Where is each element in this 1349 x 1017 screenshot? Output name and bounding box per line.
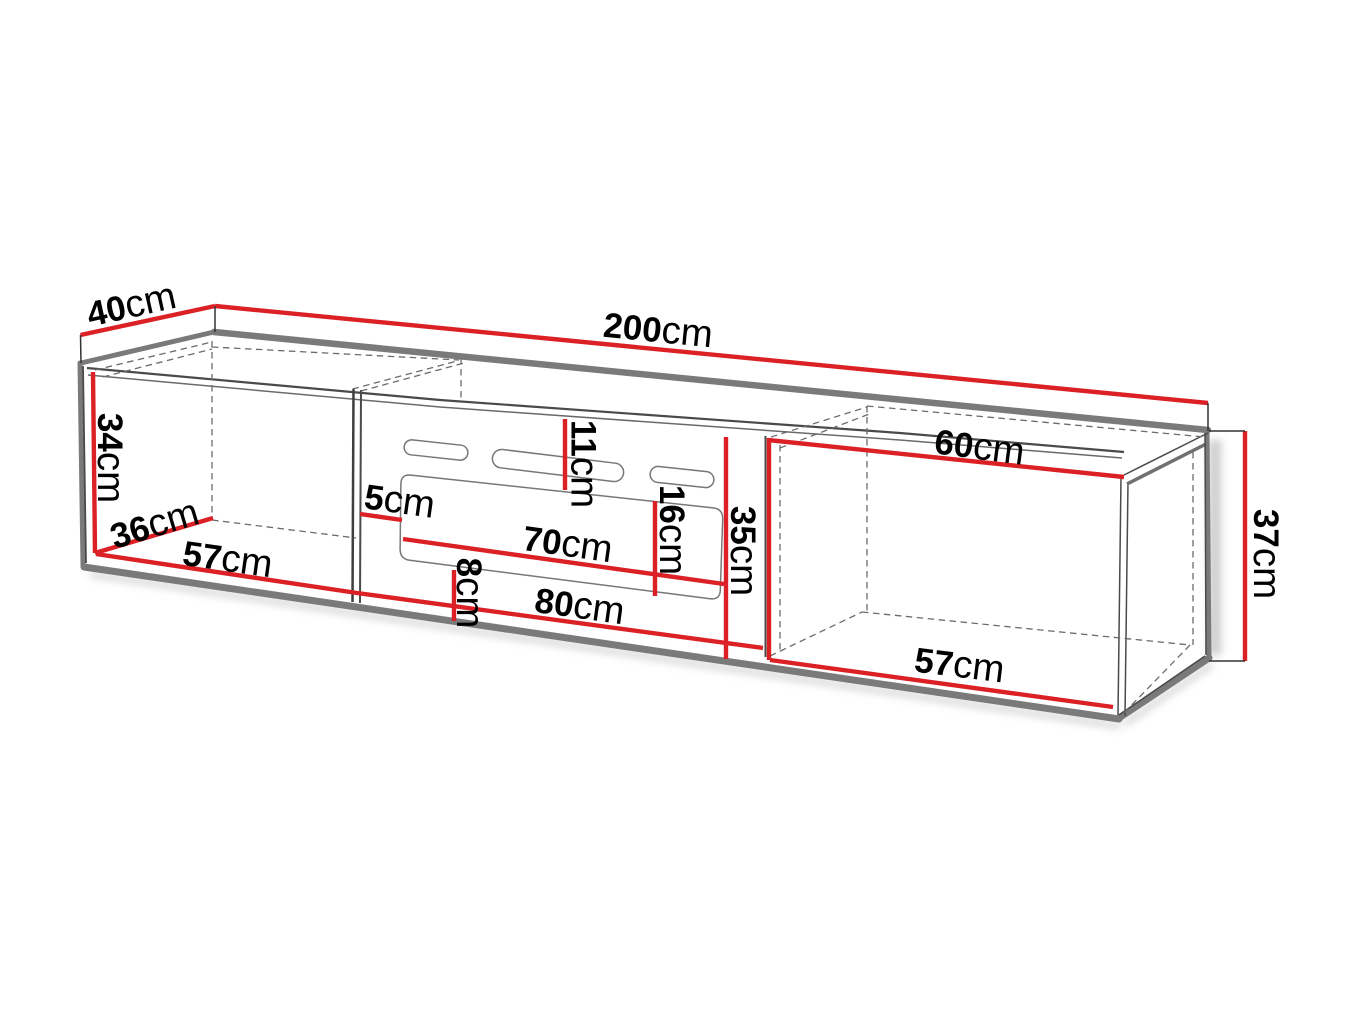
- svg-text:35cm: 35cm: [722, 506, 765, 596]
- svg-text:37cm: 37cm: [1245, 509, 1288, 599]
- svg-text:11cm: 11cm: [563, 420, 606, 508]
- svg-text:16cm: 16cm: [651, 485, 694, 575]
- svg-text:8cm: 8cm: [448, 558, 491, 629]
- svg-text:34cm: 34cm: [89, 413, 132, 503]
